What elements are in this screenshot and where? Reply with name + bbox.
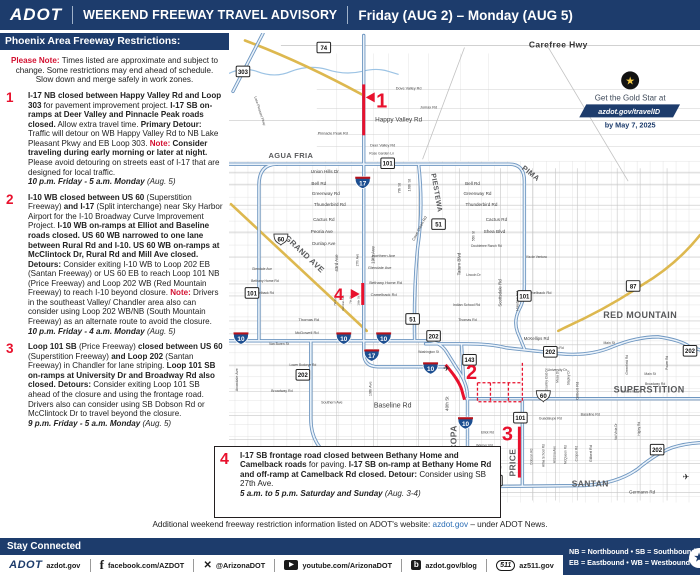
street-label: Thunderbird Rd: [466, 202, 498, 207]
street-label: Country Club Dr: [544, 367, 548, 391]
facebook-icon: f: [100, 557, 104, 573]
divider: [486, 559, 487, 572]
street-label: Bethany Home Rd: [369, 280, 402, 285]
street-label: Shea Blvd: [484, 229, 506, 235]
link-azdot[interactable]: ADOT azdot.gov: [9, 559, 80, 571]
divider: [90, 559, 91, 572]
airport-icon: ✈: [443, 364, 450, 373]
street-label: Avondale Ave: [235, 368, 239, 391]
route-202-shield: 202: [650, 444, 664, 455]
route-10-shield: 10: [423, 362, 438, 374]
panel-title: Phoenix Area Freeway Restrictions:: [0, 33, 229, 50]
freeway-name-label: SANTAN: [572, 479, 609, 489]
page-title: WEEKEND FREEWAY TRAVEL ADVISORY: [83, 8, 337, 22]
street-label: 43rd Ave: [334, 254, 339, 272]
svg-text:202: 202: [545, 350, 556, 356]
street-label: Washington St: [418, 350, 439, 354]
route-202-shield: 202: [683, 346, 697, 357]
street-label: Greenway Rd: [463, 191, 491, 196]
street-label: Indian School Rd: [453, 303, 480, 307]
street-label: 56th St: [471, 231, 475, 241]
svg-text:202: 202: [429, 334, 440, 340]
street-label: Thomas Rd: [299, 317, 320, 322]
street-label: Higley Rd: [637, 422, 641, 436]
link-label: youtube.com/ArizonaDOT: [302, 561, 392, 570]
svg-text:10: 10: [380, 336, 388, 343]
item-number: 4: [220, 451, 240, 513]
street-label: Happy Valley Rd: [375, 116, 422, 123]
freeway-name-label: Carefree Hwy: [529, 39, 588, 49]
route-101-shield: 101: [518, 291, 532, 302]
street-label: Arizona Ave: [552, 446, 556, 463]
street-label: 16th St: [357, 296, 361, 306]
route-202-shield: 202: [544, 347, 558, 358]
svg-text:51: 51: [409, 317, 416, 323]
route-17-shield: 17: [355, 177, 370, 189]
street-label: Rose Garden Ln: [369, 151, 394, 155]
direction-legend: NB = Northbound • SB = Southbound EB = E…: [563, 540, 700, 575]
street-label: Lower Buckeye Rd: [289, 363, 316, 367]
street-label: Val Vista Dr: [614, 422, 618, 439]
street-label: Bell Rd: [311, 181, 326, 186]
street-label: Cooper Rd: [574, 446, 578, 462]
freeway-name-label: SUPERSTITION: [614, 385, 685, 395]
street-label: Lincoln Dr: [466, 273, 481, 277]
svg-text:74: 74: [320, 46, 327, 52]
street-label: Jomax Rd: [420, 105, 437, 109]
street-label: Thomas Rd: [458, 318, 477, 322]
route-51-shield: 51: [406, 314, 420, 325]
route-202-shield: 202: [427, 331, 441, 342]
svg-text:17: 17: [359, 180, 367, 187]
legend-line1: NB = Northbound • SB = Southbound: [569, 547, 700, 557]
route-202-shield: 202: [296, 369, 310, 380]
svg-text:101: 101: [515, 416, 526, 422]
link-youtube[interactable]: ▶ youtube.com/ArizonaDOT: [284, 560, 392, 570]
street-label: Pinnacle Peak Rd: [318, 131, 348, 135]
callout-item-4: 4 I-17 SB frontage road closed between B…: [214, 446, 501, 518]
street-label: Elliot Rd: [481, 431, 494, 435]
street-label: Southern Ave: [321, 401, 342, 405]
street-label: Glendale Ave: [368, 265, 392, 270]
route-101-shield: 101: [381, 158, 395, 169]
svg-text:202: 202: [298, 373, 309, 379]
header-divider: [72, 6, 73, 24]
link-511[interactable]: 511 az511.gov: [496, 560, 554, 571]
blog-icon: b: [411, 560, 421, 570]
street-label: Gilbert Rd: [589, 445, 593, 462]
svg-text:101: 101: [247, 291, 258, 297]
street-label: 27th Ave: [356, 254, 360, 267]
street-label: Dunlap Ave: [312, 241, 336, 246]
street-label: McKellips Rd: [524, 336, 550, 341]
closure-marker-number: 1: [376, 90, 387, 112]
street-label: 40th St: [445, 396, 450, 411]
route-87-shield: 87: [626, 281, 640, 292]
airport-icon: ✈: [683, 473, 690, 482]
street-label: Scottsdale Rd: [497, 279, 502, 307]
route-10-shield: 10: [458, 417, 473, 429]
street-label: Cactus Rd: [486, 217, 508, 222]
header-bar: ADOT WEEKEND FREEWAY TRAVEL ADVISORY Fri…: [0, 0, 700, 30]
street-label: Via de Ventura: [526, 255, 547, 259]
closure-markers: 1234: [334, 90, 513, 445]
svg-text:10: 10: [462, 421, 470, 428]
adot-logo-icon: ADOT: [9, 559, 42, 571]
svg-text:101: 101: [519, 294, 530, 300]
street-label: Cactus Rd: [313, 217, 335, 222]
street-label: Dove Valley Rd: [396, 86, 422, 90]
item-number: 2: [6, 193, 28, 336]
link-facebook[interactable]: f facebook.com/AZDOT: [100, 557, 185, 573]
street-label: Glendale Ave: [252, 267, 272, 271]
goldstar-line3: by May 7, 2025: [605, 120, 656, 129]
street-label: Stapley Dr: [566, 369, 570, 385]
street-label: Greenway Rd: [312, 191, 340, 196]
divider: [274, 559, 275, 572]
street-label: Dobson Rd: [529, 448, 533, 464]
divider: [193, 559, 194, 572]
route-101-shield: 101: [245, 288, 259, 299]
street-label: 19th Ave: [371, 246, 376, 264]
street-label: Lake Pleasant Pkwy: [253, 96, 266, 126]
link-label: az511.gov: [519, 561, 553, 570]
svg-text:10: 10: [237, 336, 245, 343]
closure-marker-number: 2: [466, 362, 477, 384]
street-label: Broadway Rd: [271, 389, 292, 393]
item-number: 3: [6, 342, 28, 428]
street-label: Alma School Rd: [541, 444, 545, 467]
route-303-shield: 303: [236, 66, 250, 77]
restriction-item-1: 1 I-17 NB closed between Happy Valley Rd…: [6, 91, 225, 187]
street-label: 16th St: [407, 178, 412, 192]
street-label: Van Buren St: [269, 342, 289, 346]
item-text: Loop 101 SB (Price Freeway) closed betwe…: [28, 342, 225, 428]
item-text: I-17 NB closed between Happy Valley Rd a…: [28, 91, 225, 187]
marker-arrow-icon: [366, 92, 375, 102]
svg-text:17: 17: [368, 353, 376, 360]
advisory-page: ADOT WEEKEND FREEWAY TRAVEL ADVISORY Fri…: [0, 0, 700, 575]
item-number: 1: [6, 91, 28, 187]
route-101-shield: 101: [514, 412, 528, 423]
street-label: Thunderbird Rd: [314, 202, 346, 207]
closure-marker-number: 4: [334, 285, 344, 304]
freeway-name-label: GRAND AVE: [283, 234, 326, 275]
street-label: 7th St: [397, 182, 402, 193]
goldstar-line1: Get the Gold Star at: [595, 93, 667, 102]
x-twitter-icon: ✕: [204, 560, 212, 571]
svg-text:51: 51: [435, 223, 442, 229]
street-label: McDowell Rd: [295, 330, 318, 335]
website-note: Additional weekend freeway restriction i…: [0, 520, 700, 529]
svg-text:303: 303: [238, 70, 249, 76]
street-label: 19th Ave: [369, 381, 373, 396]
street-label: Union Hills Dr: [311, 169, 339, 174]
restriction-item-2: 2 I-10 WB closed between US 60 (Supersti…: [6, 193, 225, 336]
svg-text:202: 202: [652, 448, 663, 454]
freeway-name-label: RED MOUNTAIN: [603, 310, 677, 320]
gold-star-icon: ★: [625, 75, 635, 87]
date-range: Friday (AUG 2) – Monday (AUG 5): [358, 8, 573, 23]
link-label: azdot.gov: [46, 561, 80, 570]
link-label: azdot.gov/blog: [425, 561, 476, 570]
street-label: McQueen Rd: [563, 445, 567, 464]
restriction-item-3: 3 Loop 101 SB (Price Freeway) closed bet…: [6, 342, 225, 428]
street-label: Baseline Rd: [374, 403, 412, 410]
closure-marker-number: 3: [502, 424, 513, 446]
street-label: Bethany Home Rd: [251, 279, 279, 283]
freeway-name-label: PRICE: [507, 449, 517, 477]
svg-text:87: 87: [630, 284, 637, 290]
svg-text:202: 202: [685, 349, 696, 355]
youtube-icon: ▶: [284, 560, 298, 570]
street-label: Main St: [644, 372, 656, 376]
street-label: Power Rd: [665, 356, 669, 370]
street-label: Doubletree Ranch Rd: [471, 244, 502, 248]
svg-text:60: 60: [277, 236, 284, 243]
freeway-map: Dove Valley RdJomax RdHappy Valley RdPin…: [229, 33, 700, 516]
street-label: Guadalupe Rd: [539, 417, 562, 421]
street-label: Main St: [603, 341, 615, 345]
street-label: Baseline Rd: [581, 413, 600, 417]
item-text: I-10 WB closed between US 60 (Superstiti…: [28, 193, 225, 336]
item-text: I-17 SB frontage road closed between Bet…: [240, 451, 495, 513]
street-label: Deer Valley Rd: [370, 143, 395, 147]
goldstar-line2: azdot.gov/travelID: [598, 108, 660, 116]
street-label: Mesa Dr: [555, 370, 559, 383]
street-label: Germann Rd: [629, 490, 656, 495]
street-label: Bell Rd: [465, 181, 480, 186]
link-label: @ArizonaDOT: [216, 561, 265, 570]
svg-text:10: 10: [427, 366, 435, 373]
social-links-bar: ADOT azdot.gov f facebook.com/AZDOT ✕ @A…: [0, 555, 563, 575]
header-divider: [347, 6, 348, 24]
street-label: Greenfield Rd: [625, 355, 629, 375]
route-60-shield: 60: [274, 234, 288, 245]
adot-logo: ADOT: [10, 5, 62, 25]
street-label: Peoria Ave: [311, 229, 334, 234]
route-51-shield: 51: [432, 219, 446, 230]
az511-icon: 511: [496, 560, 515, 571]
freeway-name-label: AGUA FRIA: [268, 151, 313, 160]
legend-line2: EB = Eastbound • WB = Westbound: [569, 558, 700, 568]
gold-star-promo: ★ Get the Gold Star at azdot.gov/travelI…: [579, 71, 680, 129]
please-note: Please Note: Times listed are approximat…: [10, 56, 219, 85]
restrictions-panel: Phoenix Area Freeway Restrictions: Pleas…: [0, 33, 230, 516]
freeway-name-label: PIESTEWA: [429, 173, 443, 213]
svg-text:60: 60: [540, 393, 547, 400]
link-blog[interactable]: b azdot.gov/blog: [411, 560, 476, 570]
svg-text:101: 101: [383, 162, 394, 168]
link-label: facebook.com/AZDOT: [108, 561, 184, 570]
divider: [401, 559, 402, 572]
street-label: Camelback Rd: [371, 292, 397, 297]
street-label: Tatum Blvd: [457, 252, 462, 275]
route-74-shield: 74: [317, 42, 331, 53]
svg-text:10: 10: [340, 336, 348, 343]
street-label: Gilbert Rd: [574, 382, 579, 400]
link-x[interactable]: ✕ @ArizonaDOT: [204, 560, 266, 571]
